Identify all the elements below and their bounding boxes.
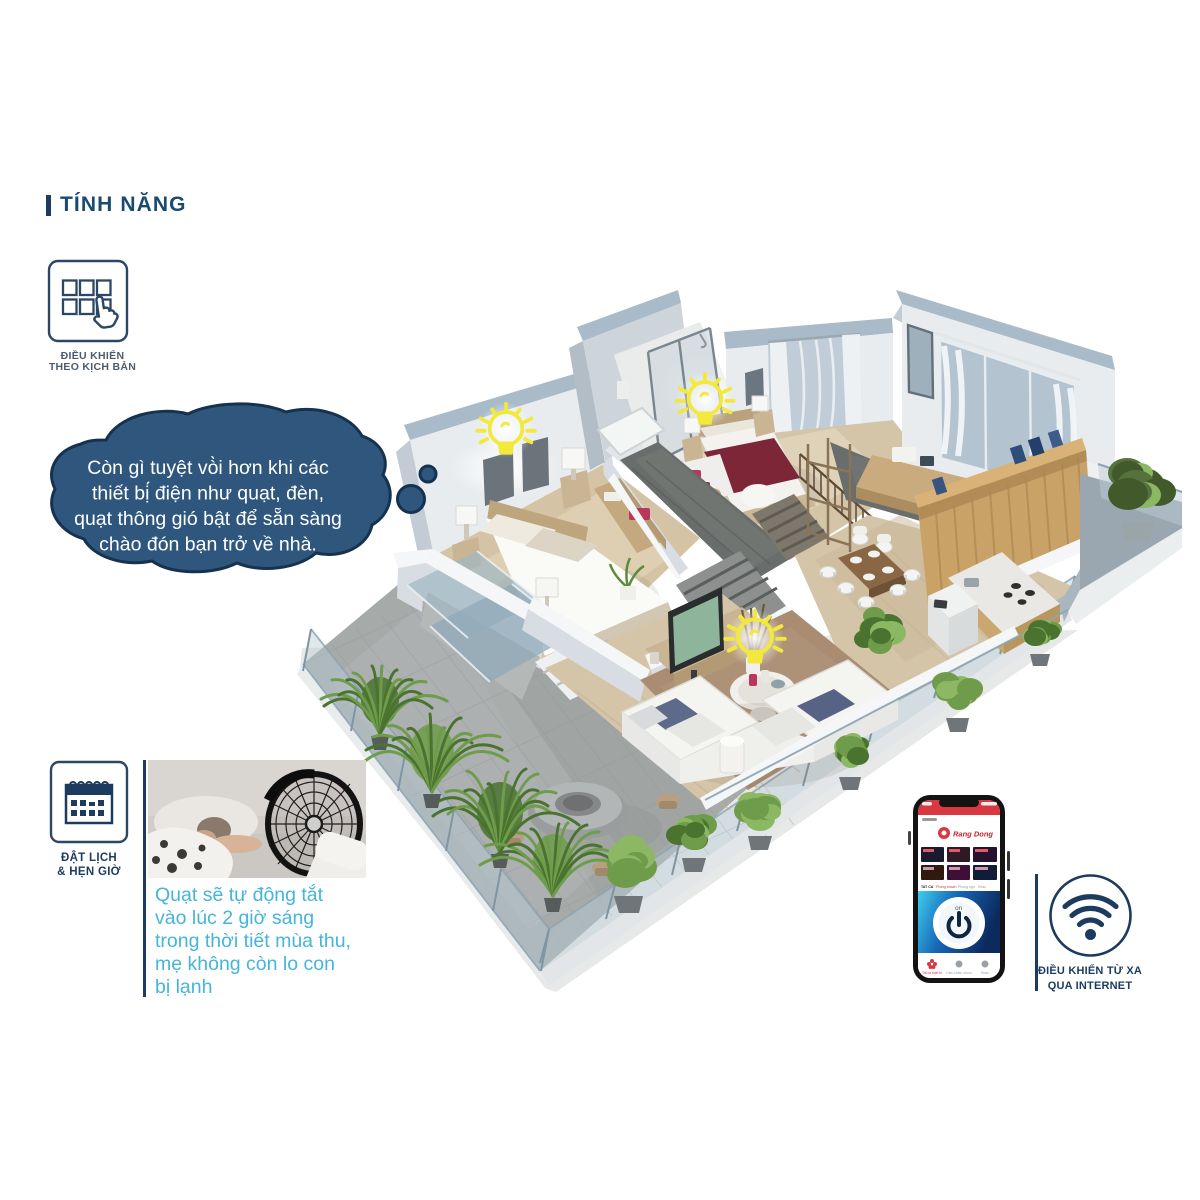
svg-text:thiết bị́ điện như quạt, đèn: thiết bị́ điện như quạt, đèn, <box>92 482 324 505</box>
svg-text:Còn gì tuyệt vò̀i hơn khi các: Còn gì tuyệt vò̀i hơn khi các <box>87 456 329 479</box>
svg-text:Dieu khien nhom: Dieu khien nhom <box>946 971 972 975</box>
svg-text:chào đón bạn trở về nhà.: chào đón bạn trở về nhà. <box>99 534 317 556</box>
svg-text:Phong ngu: Phong ngu <box>958 885 975 889</box>
svg-text:on: on <box>955 905 963 912</box>
svg-text:Khac: Khac <box>978 885 986 889</box>
svg-text:Rang Dong: Rang Dong <box>953 830 993 839</box>
svg-text:Phong khach: Phong khach <box>936 885 956 889</box>
svg-text:quạt thông gió bật để sẵn sà: quạt thông gió bật để sẵn sàng <box>74 507 342 530</box>
svg-text:TAT CA: TAT CA <box>921 885 934 889</box>
svg-text:Tat ca thiet bi: Tat ca thiet bi <box>922 971 942 975</box>
svg-text:Khac: Khac <box>981 971 989 975</box>
